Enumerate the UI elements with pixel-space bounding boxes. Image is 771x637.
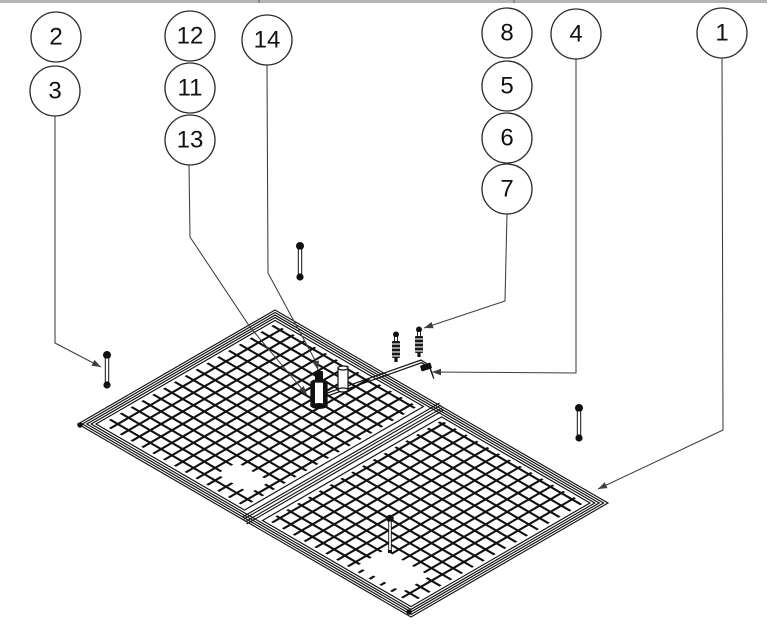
callout-balloon-1: 1 bbox=[697, 8, 747, 58]
callout-number: 2 bbox=[49, 24, 62, 51]
corner-joint bbox=[77, 422, 82, 427]
callout-number: 14 bbox=[254, 27, 281, 54]
leader-lines bbox=[55, 58, 723, 489]
callout-number: 5 bbox=[500, 73, 513, 100]
corner-joint bbox=[406, 609, 411, 614]
leader-line-1 bbox=[598, 58, 723, 489]
threaded-screw bbox=[392, 332, 400, 363]
leader-arrowhead bbox=[432, 369, 441, 376]
hex-bolt bbox=[296, 242, 304, 281]
callout-number: 1 bbox=[715, 20, 728, 47]
callout-balloon-8: 8 bbox=[482, 8, 532, 58]
callout-balloon-4: 4 bbox=[551, 9, 601, 59]
callout-number: 11 bbox=[178, 75, 203, 102]
threaded-screw bbox=[415, 327, 423, 358]
callout-balloon-3: 3 bbox=[30, 66, 80, 116]
strip-tick bbox=[258, 0, 260, 3]
leader-arrowhead bbox=[598, 482, 608, 489]
callout-balloon-2: 2 bbox=[31, 12, 81, 62]
page: Isometric line drawing of a two-section … bbox=[0, 0, 771, 637]
hex-bolt bbox=[103, 351, 111, 389]
leader-arrowhead bbox=[313, 361, 319, 371]
hex-bolt bbox=[575, 404, 583, 442]
callout-balloons: 2312111314856741 bbox=[30, 8, 747, 214]
strip-tick bbox=[513, 0, 515, 3]
callout-number: 8 bbox=[500, 20, 513, 47]
leader-arrowhead bbox=[92, 360, 102, 367]
callout-number: 7 bbox=[500, 176, 513, 203]
callout-balloon-12: 12 bbox=[165, 11, 215, 61]
callout-balloon-5: 5 bbox=[482, 61, 532, 111]
leader-line-3 bbox=[55, 116, 101, 367]
window-edge-strip bbox=[0, 0, 767, 3]
callout-balloon-13: 13 bbox=[165, 115, 215, 165]
callout-number: 12 bbox=[177, 23, 204, 50]
leader-arrowhead bbox=[424, 322, 434, 328]
callout-number: 4 bbox=[569, 21, 582, 48]
exploded-parts-diagram: Isometric line drawing of a two-section … bbox=[0, 0, 771, 637]
spacer-cylinder bbox=[338, 366, 348, 392]
leader-line-14 bbox=[267, 65, 319, 370]
leg-cylinder bbox=[311, 371, 327, 409]
callout-balloon-14: 14 bbox=[242, 15, 292, 65]
callout-number: 13 bbox=[177, 127, 204, 154]
callout-balloon-11: 11 bbox=[165, 63, 215, 113]
callout-number: 3 bbox=[48, 78, 61, 105]
leader-line-7 bbox=[424, 214, 507, 328]
callout-balloon-6: 6 bbox=[482, 113, 532, 163]
panel-outer-frame bbox=[78, 310, 608, 617]
callout-balloon-7: 7 bbox=[482, 164, 532, 214]
callout-number: 6 bbox=[500, 125, 513, 152]
